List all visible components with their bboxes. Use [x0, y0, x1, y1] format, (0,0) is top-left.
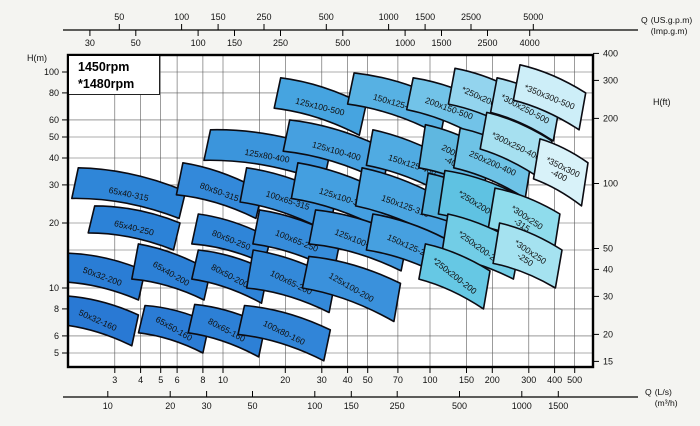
top-gpm-axis [63, 24, 638, 36]
q-m3h-tick-label: 250 [390, 401, 405, 411]
q-impgpm-tick-label: 150 [227, 38, 242, 48]
rpm-annotation-box: 1450rpm *1480rpm [69, 56, 160, 95]
q-impgpm-tick-label: 4000 [520, 38, 540, 48]
h-ft-tick-label: 200 [603, 113, 618, 123]
q-usgpm-tick-label: 100 [174, 12, 189, 22]
h-m-tick-label: 5 [54, 348, 59, 358]
q-ls-tick-label: 70 [393, 375, 403, 385]
q-ls-tick-label: 4 [138, 375, 143, 385]
bottom-axis-ls: (L/s) [655, 387, 678, 398]
q-impgpm-tick-label: 1000 [395, 38, 415, 48]
q-impgpm-tick-label: 100 [191, 38, 206, 48]
q-ls-tick-label: 20 [280, 375, 290, 385]
pump-chart-canvas: 125x100-500150x125-500200x150-500*250x20… [0, 0, 700, 426]
bottom-m3h-axis [63, 391, 638, 397]
q-impgpm-tick-label: 2500 [477, 38, 497, 48]
h-m-tick-label: 40 [49, 153, 59, 163]
q-ls-tick-label: 10 [218, 375, 228, 385]
q-m3h-tick-label: 20 [165, 401, 175, 411]
q-usgpm-tick-label: 150 [211, 12, 226, 22]
q-impgpm-tick-label: 30 [85, 38, 95, 48]
q-usgpm-tick-label: 1500 [415, 12, 435, 22]
rpm-line-1480: *1480rpm [78, 76, 159, 93]
q-ls-tick-label: 30 [317, 375, 327, 385]
q-impgpm-tick-label: 500 [335, 38, 350, 48]
q-impgpm-tick-label: 250 [273, 38, 288, 48]
q-m3h-tick-label: 500 [452, 401, 467, 411]
h-m-tick-label: 20 [49, 218, 59, 228]
h-ft-tick-label: 300 [603, 75, 618, 85]
h-m-tick-label: 50 [49, 132, 59, 142]
q-usgpm-tick-label: 500 [319, 12, 334, 22]
h-ft-tick-label: 40 [603, 264, 613, 274]
q-ls-tick-label: 300 [521, 375, 536, 385]
y-axis-title-meters: H(m) [27, 53, 47, 63]
y-axis-title-feet: H(ft) [653, 97, 671, 107]
h-ft-tick-label: 100 [603, 179, 618, 189]
bottom-axis-q: Q [645, 387, 652, 409]
h-m-tick-label: 8 [54, 304, 59, 314]
h-ft-tick-label: 50 [603, 244, 613, 254]
h-ft-tick-label: 15 [603, 356, 613, 366]
q-ls-tick-label: 6 [175, 375, 180, 385]
q-impgpm-tick-label: 1500 [431, 38, 451, 48]
q-usgpm-tick-label: 5000 [523, 12, 543, 22]
h-m-tick-label: 60 [49, 115, 59, 125]
q-usgpm-tick-label: 2500 [461, 12, 481, 22]
q-ls-tick-label: 150 [459, 375, 474, 385]
q-m3h-tick-label: 30 [202, 401, 212, 411]
q-m3h-tick-label: 1500 [548, 401, 568, 411]
q-ls-tick-label: 8 [200, 375, 205, 385]
q-impgpm-tick-label: 50 [131, 38, 141, 48]
h-m-tick-label: 100 [44, 67, 59, 77]
h-m-tick-label: 80 [49, 88, 59, 98]
top-axis-impgpm: (Imp.g.m) [651, 26, 693, 37]
q-ls-tick-label: 200 [485, 375, 500, 385]
q-m3h-tick-label: 50 [247, 401, 257, 411]
q-usgpm-tick-label: 250 [256, 12, 271, 22]
q-ls-tick-label: 100 [422, 375, 437, 385]
q-usgpm-tick-label: 1000 [379, 12, 399, 22]
h-m-tick-label: 30 [49, 180, 59, 190]
bottom-axis-title: Q (L/s) (m³/h) [645, 387, 678, 409]
top-axis-q: Q [641, 15, 648, 37]
top-axis-title: Q (US.g.p.m) (Imp.g.m) [641, 15, 692, 37]
q-m3h-tick-label: 150 [344, 401, 359, 411]
q-ls-tick-label: 40 [343, 375, 353, 385]
q-usgpm-tick-label: 50 [114, 12, 124, 22]
rpm-line-1450: 1450rpm [78, 59, 159, 76]
q-ls-tick-label: 5 [158, 375, 163, 385]
q-ls-tick-label: 400 [547, 375, 562, 385]
q-m3h-tick-label: 1000 [512, 401, 532, 411]
q-m3h-tick-label: 100 [307, 401, 322, 411]
bottom-axis-m3h: (m³/h) [655, 398, 678, 409]
q-ls-tick-label: 50 [363, 375, 373, 385]
h-m-tick-label: 6 [54, 331, 59, 341]
h-ft-tick-label: 400 [603, 48, 618, 58]
h-m-tick-label: 10 [49, 283, 59, 293]
q-ls-tick-label: 500 [567, 375, 582, 385]
h-ft-tick-label: 20 [603, 329, 613, 339]
h-ft-tick-label: 30 [603, 291, 613, 301]
q-m3h-tick-label: 10 [103, 401, 113, 411]
q-ls-tick-label: 3 [112, 375, 117, 385]
top-axis-usgpm: (US.g.p.m) [651, 15, 693, 26]
